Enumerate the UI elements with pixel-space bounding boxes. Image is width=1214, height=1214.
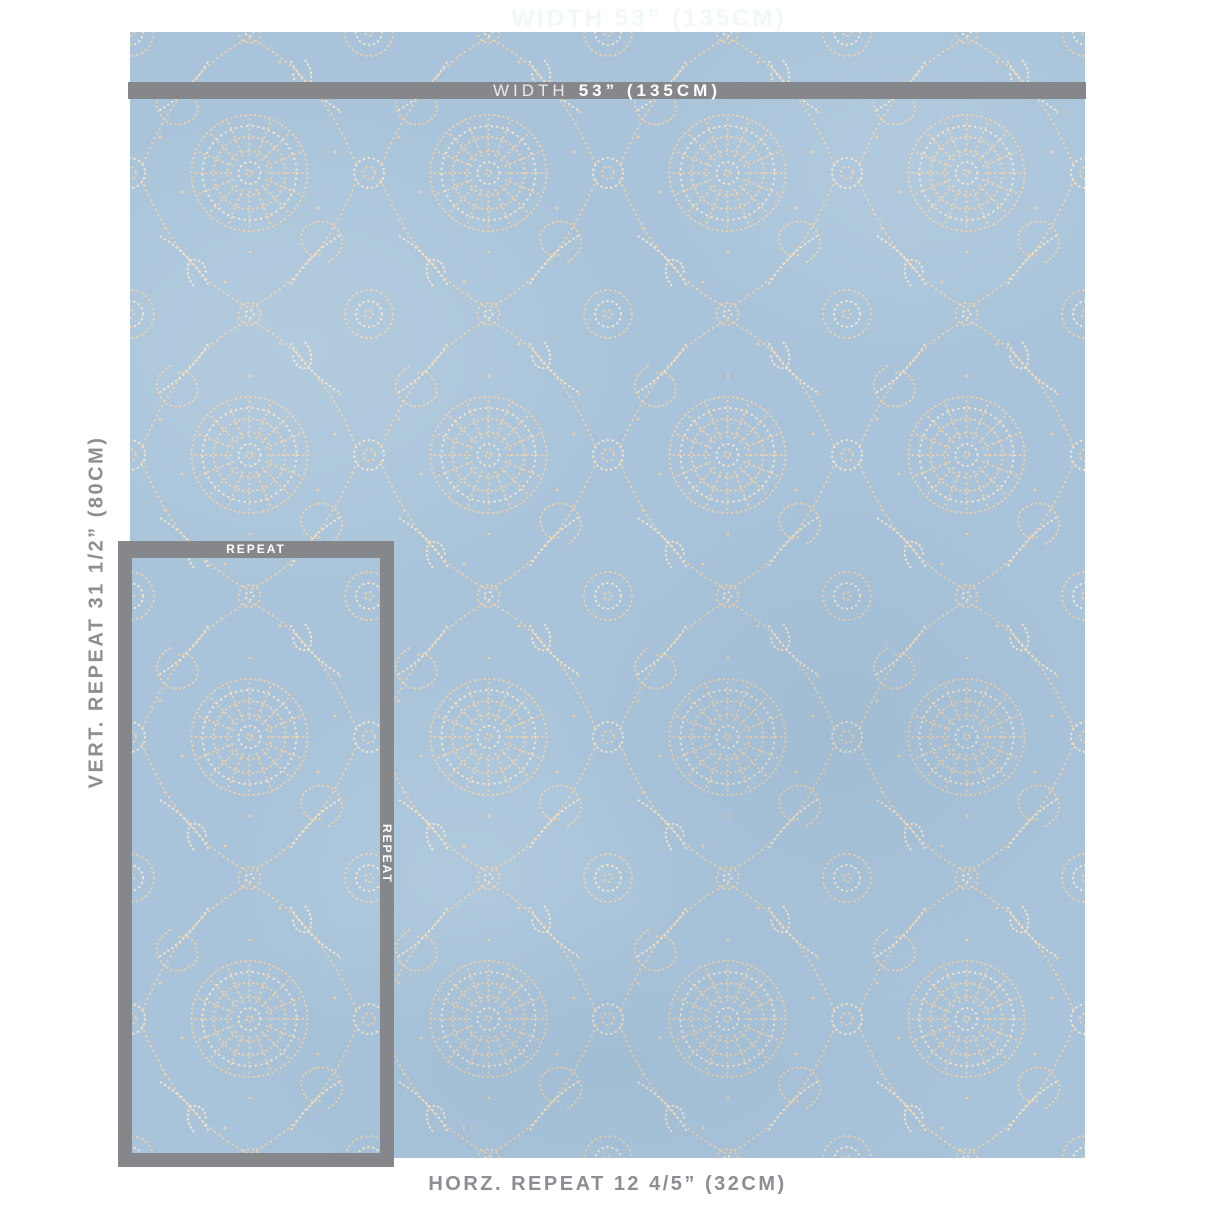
repeat-box-top-bar: REPEAT [118, 541, 394, 558]
repeat-box-right-bar: REPEAT [380, 541, 394, 1167]
repeat-outline-box: REPEAT REPEAT [118, 541, 394, 1167]
watermark-text: WIDTH 53” (135CM) [170, 5, 1128, 33]
repeat-box-left-bar [118, 541, 132, 1167]
product-image-canvas: WIDTH 53” (135CM) [0, 0, 1214, 1214]
repeat-side-label: REPEAT [380, 824, 394, 884]
vertical-repeat-label: VERT. REPEAT 31 1/2” (80CM) [86, 436, 109, 789]
width-measure-bar: WIDTH 53” (135CM) [128, 82, 1086, 99]
width-label: WIDTH [493, 82, 569, 99]
repeat-top-label: REPEAT [226, 541, 286, 558]
horizontal-repeat-label: HORZ. REPEAT 12 4/5” (32CM) [130, 1173, 1085, 1196]
width-value: 53” (135CM) [579, 82, 721, 99]
repeat-box-bottom-bar [118, 1153, 394, 1167]
